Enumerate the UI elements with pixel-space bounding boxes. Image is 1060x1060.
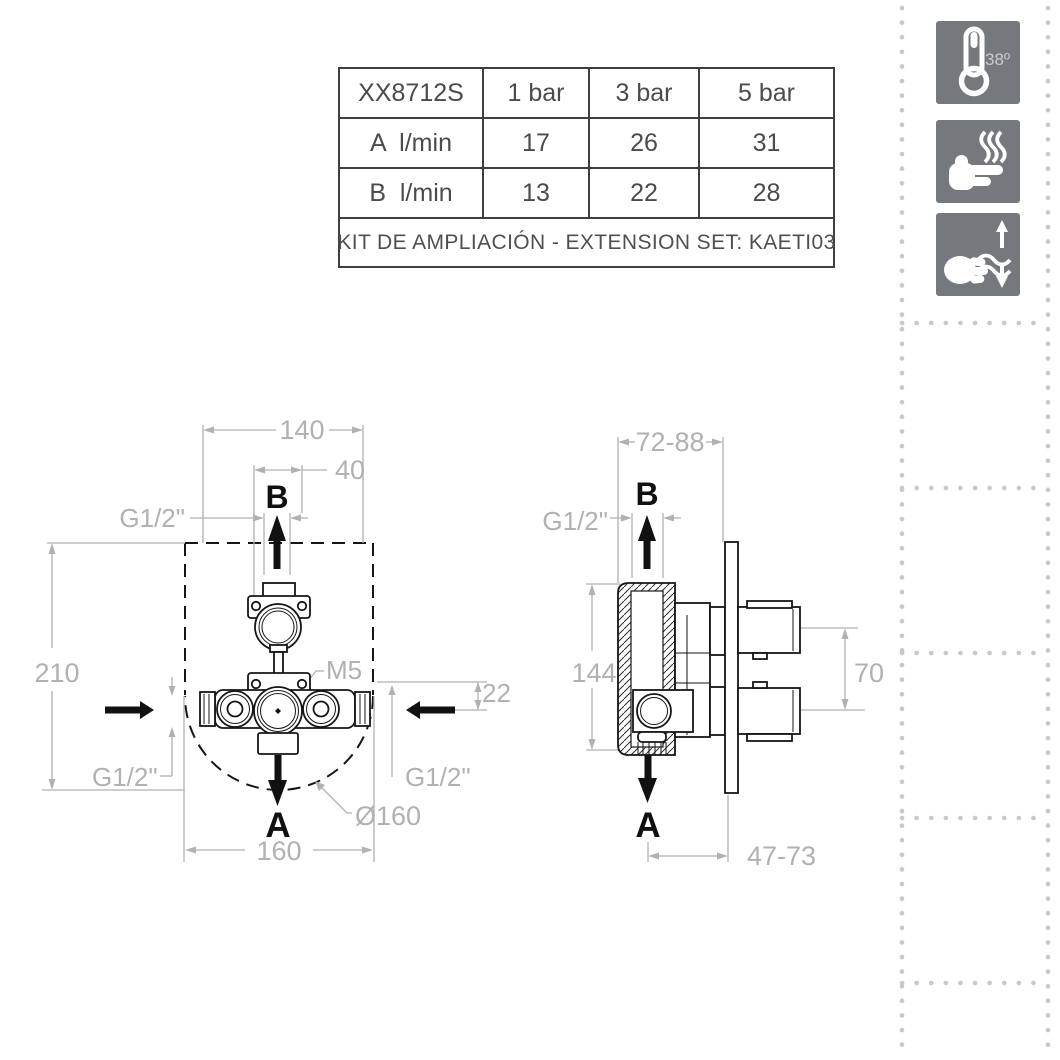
screw-m5-label: M5 <box>326 655 362 685</box>
row-b-5bar: 28 <box>700 169 833 217</box>
dim-72-88: 72-88 <box>635 427 704 457</box>
datasheet-page: XX8712S 1 bar 3 bar 5 bar A l/min 17 26 … <box>0 0 1060 1060</box>
row-a-5bar: 31 <box>700 119 833 167</box>
dim-40: 40 <box>335 455 365 485</box>
dim-22: 22 <box>482 678 511 708</box>
row-b-1bar: 13 <box>484 169 588 217</box>
outlet-a-label: A <box>265 806 290 845</box>
row-a-label: A l/min <box>340 119 482 167</box>
side-thread-label: G1/2" <box>542 506 608 536</box>
row-b-label: B l/min <box>340 169 482 217</box>
dim-70: 70 <box>854 658 884 688</box>
thread-left-label: G1/2" <box>92 762 158 792</box>
table-header-1bar: 1 bar <box>484 69 588 117</box>
row-b-3bar: 22 <box>590 169 698 217</box>
thread-right-label: G1/2" <box>405 762 471 792</box>
table-model-cell: XX8712S <box>340 69 482 117</box>
table-header-3bar: 3 bar <box>590 69 698 117</box>
side-outlet-b-label: B <box>635 476 658 512</box>
thread-top-label: G1/2" <box>119 503 185 533</box>
row-a-1bar: 17 <box>484 119 588 167</box>
table-header-5bar: 5 bar <box>700 69 833 117</box>
dim-140: 140 <box>279 415 324 445</box>
front-view-drawing: 140 40 G1/2" 210 <box>30 405 540 885</box>
side-outlet-a-label: A <box>635 806 660 845</box>
dim-144: 144 <box>571 658 616 688</box>
row-a-3bar: 26 <box>590 119 698 167</box>
outlet-b-label: B <box>265 479 288 515</box>
recess-diameter-label: Ø160 <box>355 801 421 831</box>
dim-210: 210 <box>34 658 79 688</box>
dotted-grid-border <box>890 0 1060 1060</box>
dim-47-73: 47-73 <box>747 841 816 871</box>
extension-set-note: KIT DE AMPLIACIÓN - EXTENSION SET: KAETI… <box>340 219 833 266</box>
flow-rate-table: XX8712S 1 bar 3 bar 5 bar A l/min 17 26 … <box>338 67 835 268</box>
side-view-drawing: 72-88 G1/2" 144 70 <box>540 405 900 885</box>
